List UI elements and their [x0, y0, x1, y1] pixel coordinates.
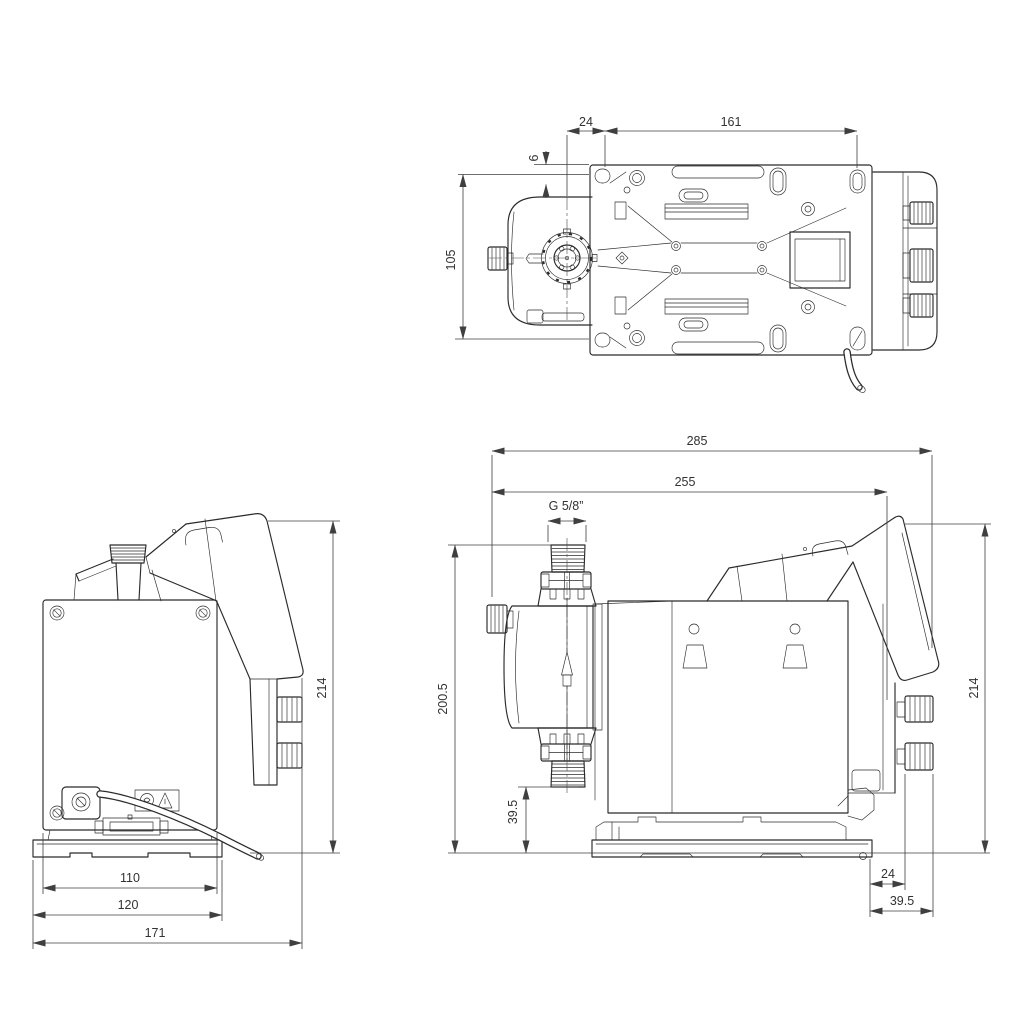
dim-label-255: 255	[675, 475, 696, 489]
front-view-dimensions: 214 110 120 171	[33, 521, 340, 949]
dim-label-171: 171	[145, 926, 166, 940]
power-cable-front	[100, 794, 265, 862]
screw-top-right	[196, 606, 210, 620]
electronics-box	[43, 600, 217, 830]
knob-front-1	[277, 697, 302, 722]
knob-side-2	[897, 743, 933, 770]
dim-label-200-5: 200.5	[436, 683, 450, 714]
knob-front-2	[277, 743, 302, 768]
rear-module-top	[873, 172, 937, 350]
pump-dimensional-drawing: 24 161 6 105	[0, 0, 1024, 1024]
top-view-dimensions: 24 161 6 105	[444, 115, 857, 339]
front-view: 214 110 120 171	[33, 514, 340, 949]
technical-drawing-page: 24 161 6 105	[0, 0, 1024, 1024]
top-threaded-connector	[74, 524, 186, 600]
dim-label-105: 105	[444, 250, 458, 271]
dim-label-side-214: 214	[967, 678, 981, 699]
dosing-head-flange	[489, 197, 599, 322]
cable-gland	[62, 787, 100, 819]
dim-label-110: 110	[120, 871, 140, 885]
screw-top-left	[50, 606, 64, 620]
knob-top-2	[903, 249, 933, 282]
side-view-dimensions: 285 255 G 5/8” 200.5 39.5 214 24 39.5	[436, 434, 991, 917]
base-plate-front	[33, 840, 222, 857]
dim-label-39-5-bottom: 39.5	[890, 894, 914, 908]
mounting-plate	[590, 165, 872, 355]
control-panel-side	[707, 516, 939, 680]
dim-label-39-5-left: 39.5	[506, 800, 520, 824]
knob-top-3	[903, 294, 933, 317]
control-panel-front	[150, 514, 303, 785]
dim-label-120: 120	[118, 898, 139, 912]
knob-side-1	[897, 696, 933, 722]
power-cable-top	[847, 352, 867, 394]
flow-arrow-icon	[562, 598, 573, 760]
dim-label-6: 6	[527, 154, 541, 161]
dim-label-285: 285	[687, 434, 708, 448]
dim-label-24: 24	[579, 115, 593, 129]
dim-label-thread: G 5/8”	[549, 499, 584, 513]
dim-label-front-214: 214	[315, 678, 329, 699]
dim-label-161: 161	[721, 115, 742, 129]
knob-top-1	[903, 202, 933, 224]
dosing-head	[487, 538, 602, 795]
side-connector-knob	[487, 605, 513, 633]
dim-label-24: 24	[881, 867, 895, 881]
top-view: 24 161 6 105	[444, 115, 937, 394]
pump-body-side	[595, 601, 895, 820]
side-view: 285 255 G 5/8” 200.5 39.5 214 24 39.5	[436, 434, 991, 917]
suction-connector-top	[488, 247, 513, 270]
